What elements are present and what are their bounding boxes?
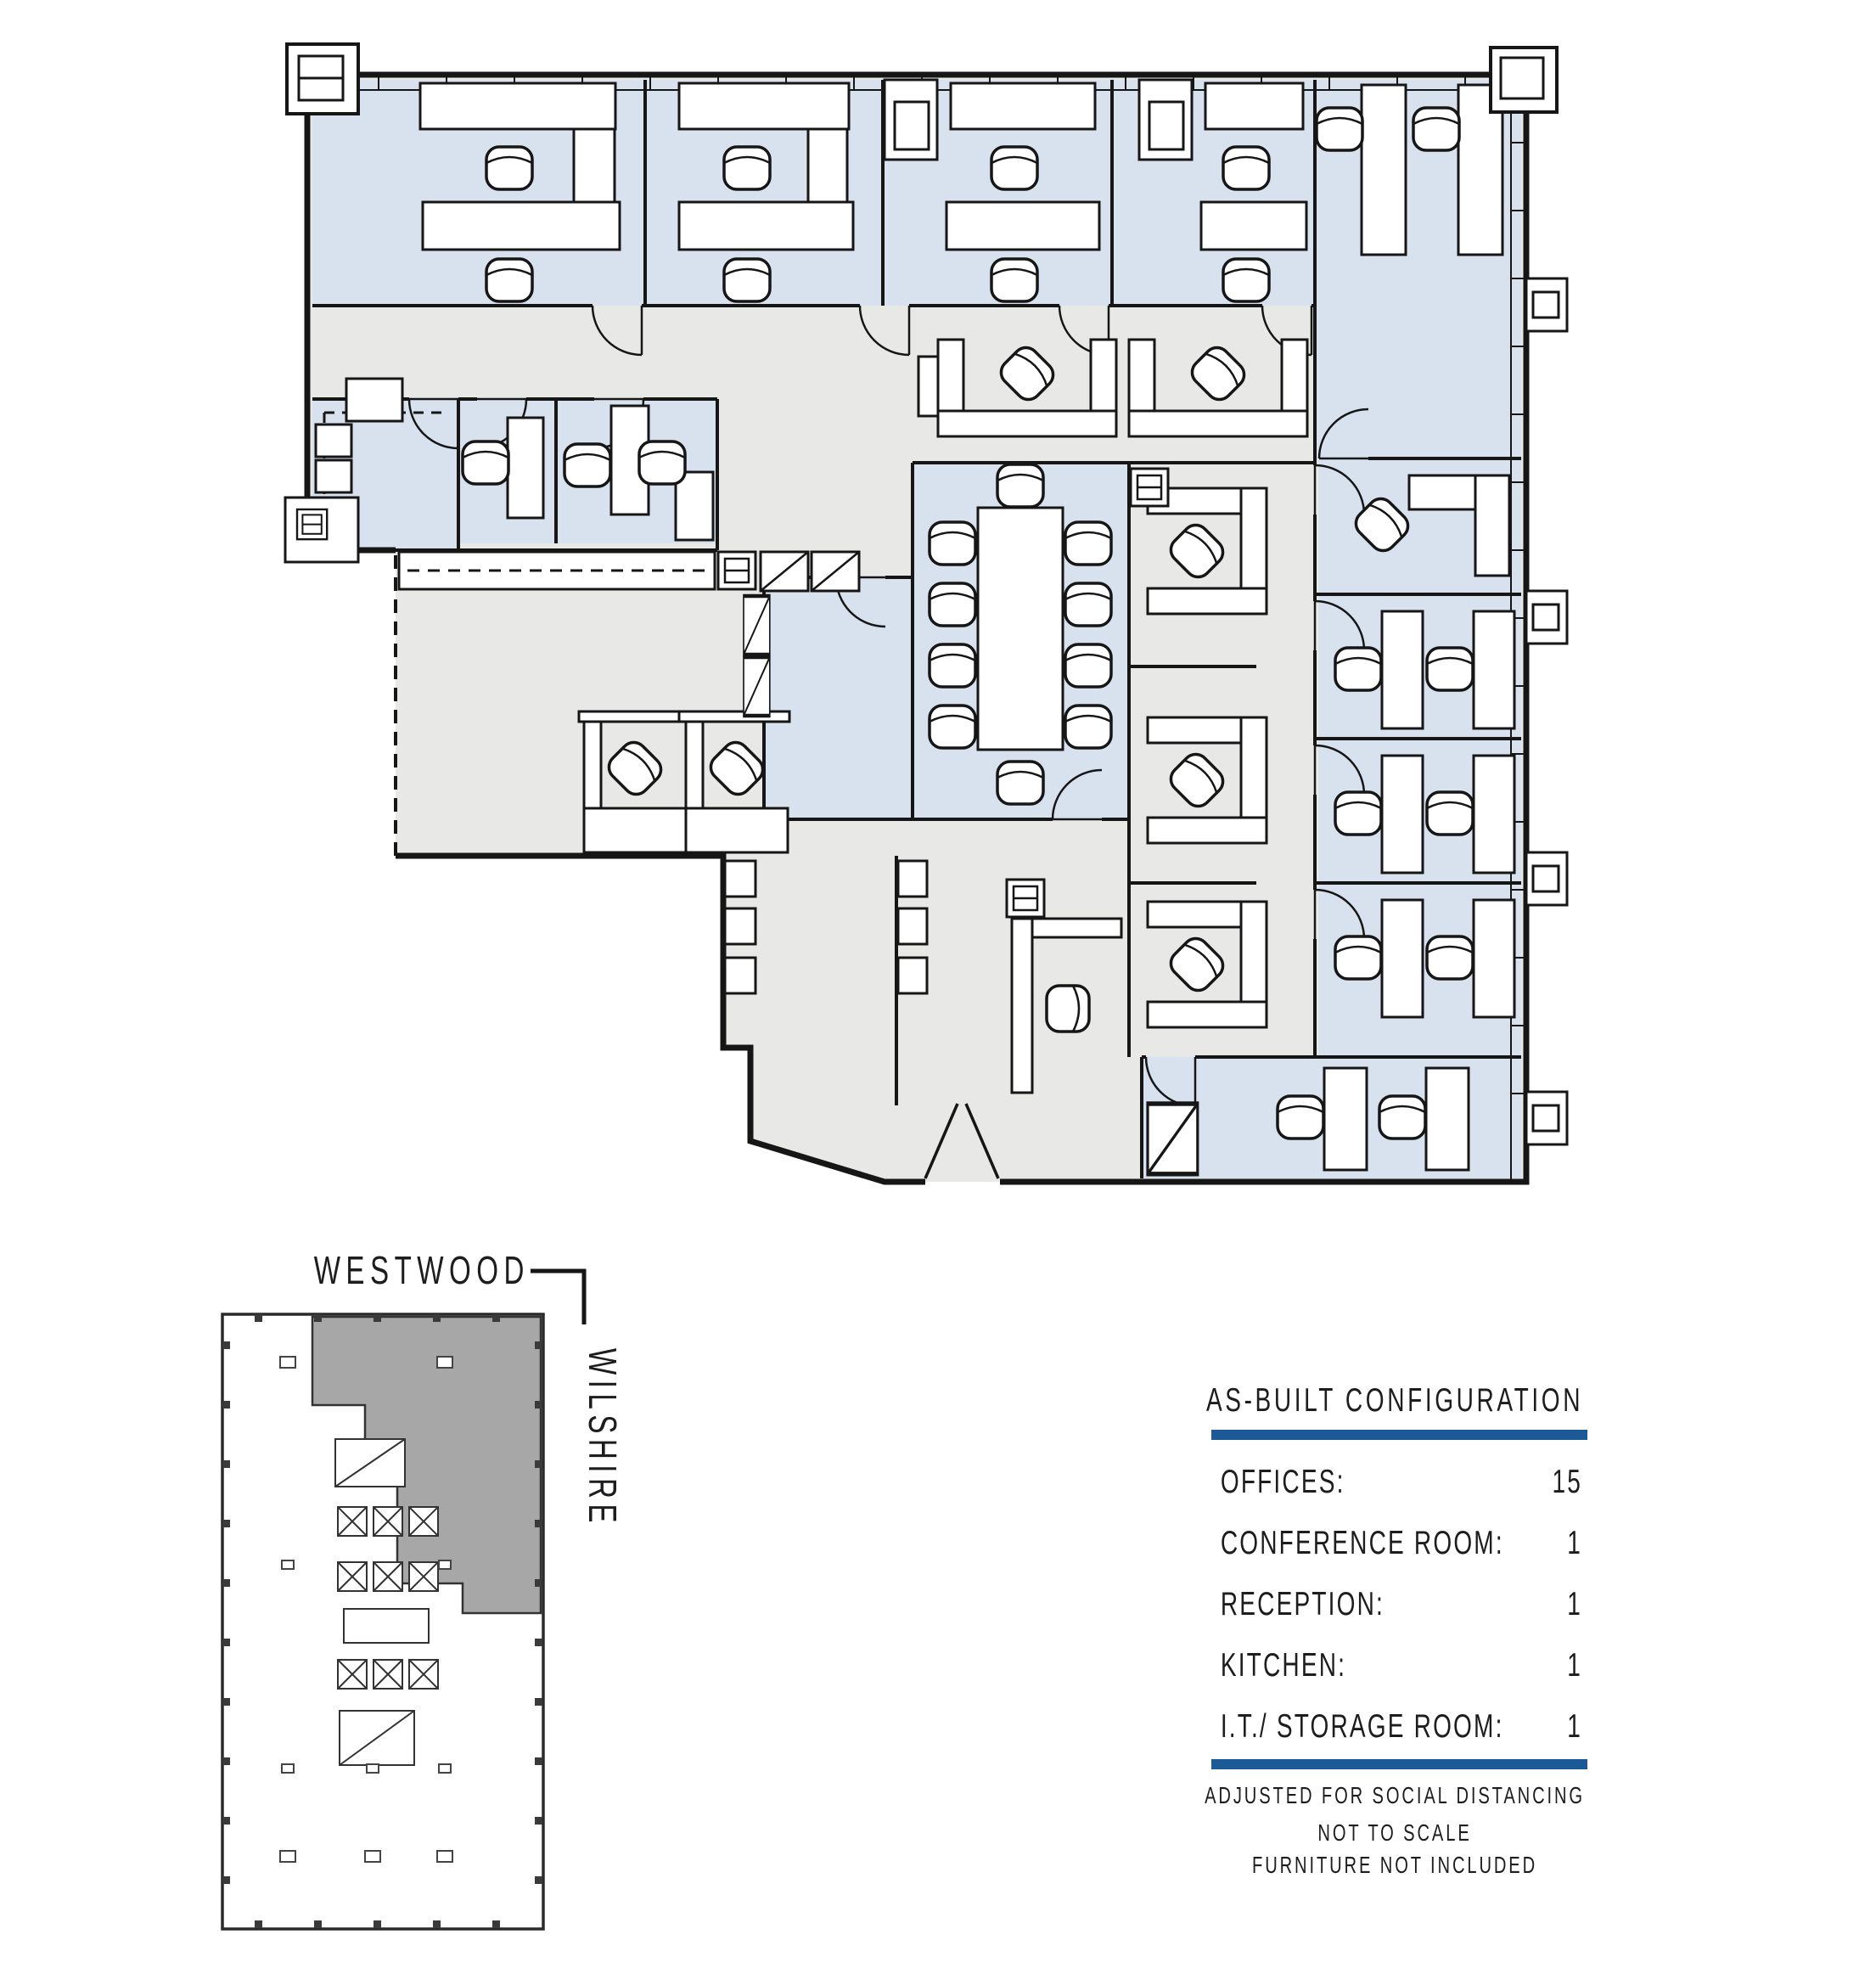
legend-note: ADJUSTED FOR SOCIAL DISTANCING	[1205, 1783, 1585, 1809]
legend-row-label: RECEPTION:	[1221, 1586, 1385, 1623]
key-plan: WESTWOOD WILSHIRE	[222, 1250, 623, 1929]
main-floor-plan	[285, 44, 1567, 1187]
plan-canvas: WESTWOOD WILSHIRE AS-BUILT CONFIGURATION…	[0, 0, 1876, 1968]
legend-row-value: 15	[1553, 1464, 1583, 1501]
legend-rule-top	[1211, 1430, 1587, 1440]
legend-row-label: KITCHEN:	[1221, 1647, 1346, 1684]
legend-row-label: I.T./ STORAGE ROOM:	[1221, 1708, 1504, 1746]
legend-row-value: 1	[1567, 1708, 1582, 1746]
legend-row-value: 1	[1567, 1586, 1582, 1623]
conference-table	[978, 508, 1063, 750]
legend-title: AS-BUILT CONFIGURATION	[1206, 1382, 1583, 1420]
legend-row-value: 1	[1567, 1647, 1582, 1684]
legend-rule-bottom	[1211, 1759, 1587, 1769]
street-label-westwood: WESTWOOD	[314, 1250, 530, 1292]
reception-desk	[1012, 919, 1032, 1093]
legend-panel: AS-BUILT CONFIGURATION OFFICES: 15 CONFE…	[1205, 1382, 1587, 1879]
office-sw	[764, 577, 913, 819]
legend-row-value: 1	[1567, 1525, 1582, 1562]
legend-row-label: OFFICES:	[1221, 1464, 1345, 1501]
street-label-wilshire: WILSHIRE	[581, 1348, 623, 1528]
legend-row-label: CONFERENCE ROOM:	[1221, 1525, 1504, 1562]
floorplan-sheet: { "legend": { "title": "AS-BUILT CONFIGU…	[0, 0, 1876, 1968]
legend-note: NOT TO SCALE	[1317, 1820, 1471, 1847]
legend-note: FURNITURE NOT INCLUDED	[1252, 1853, 1537, 1879]
legend-rows: OFFICES: 15 CONFERENCE ROOM: 1 RECEPTION…	[1221, 1464, 1582, 1746]
legend-notes: ADJUSTED FOR SOCIAL DISTANCING NOT TO SC…	[1205, 1783, 1585, 1879]
